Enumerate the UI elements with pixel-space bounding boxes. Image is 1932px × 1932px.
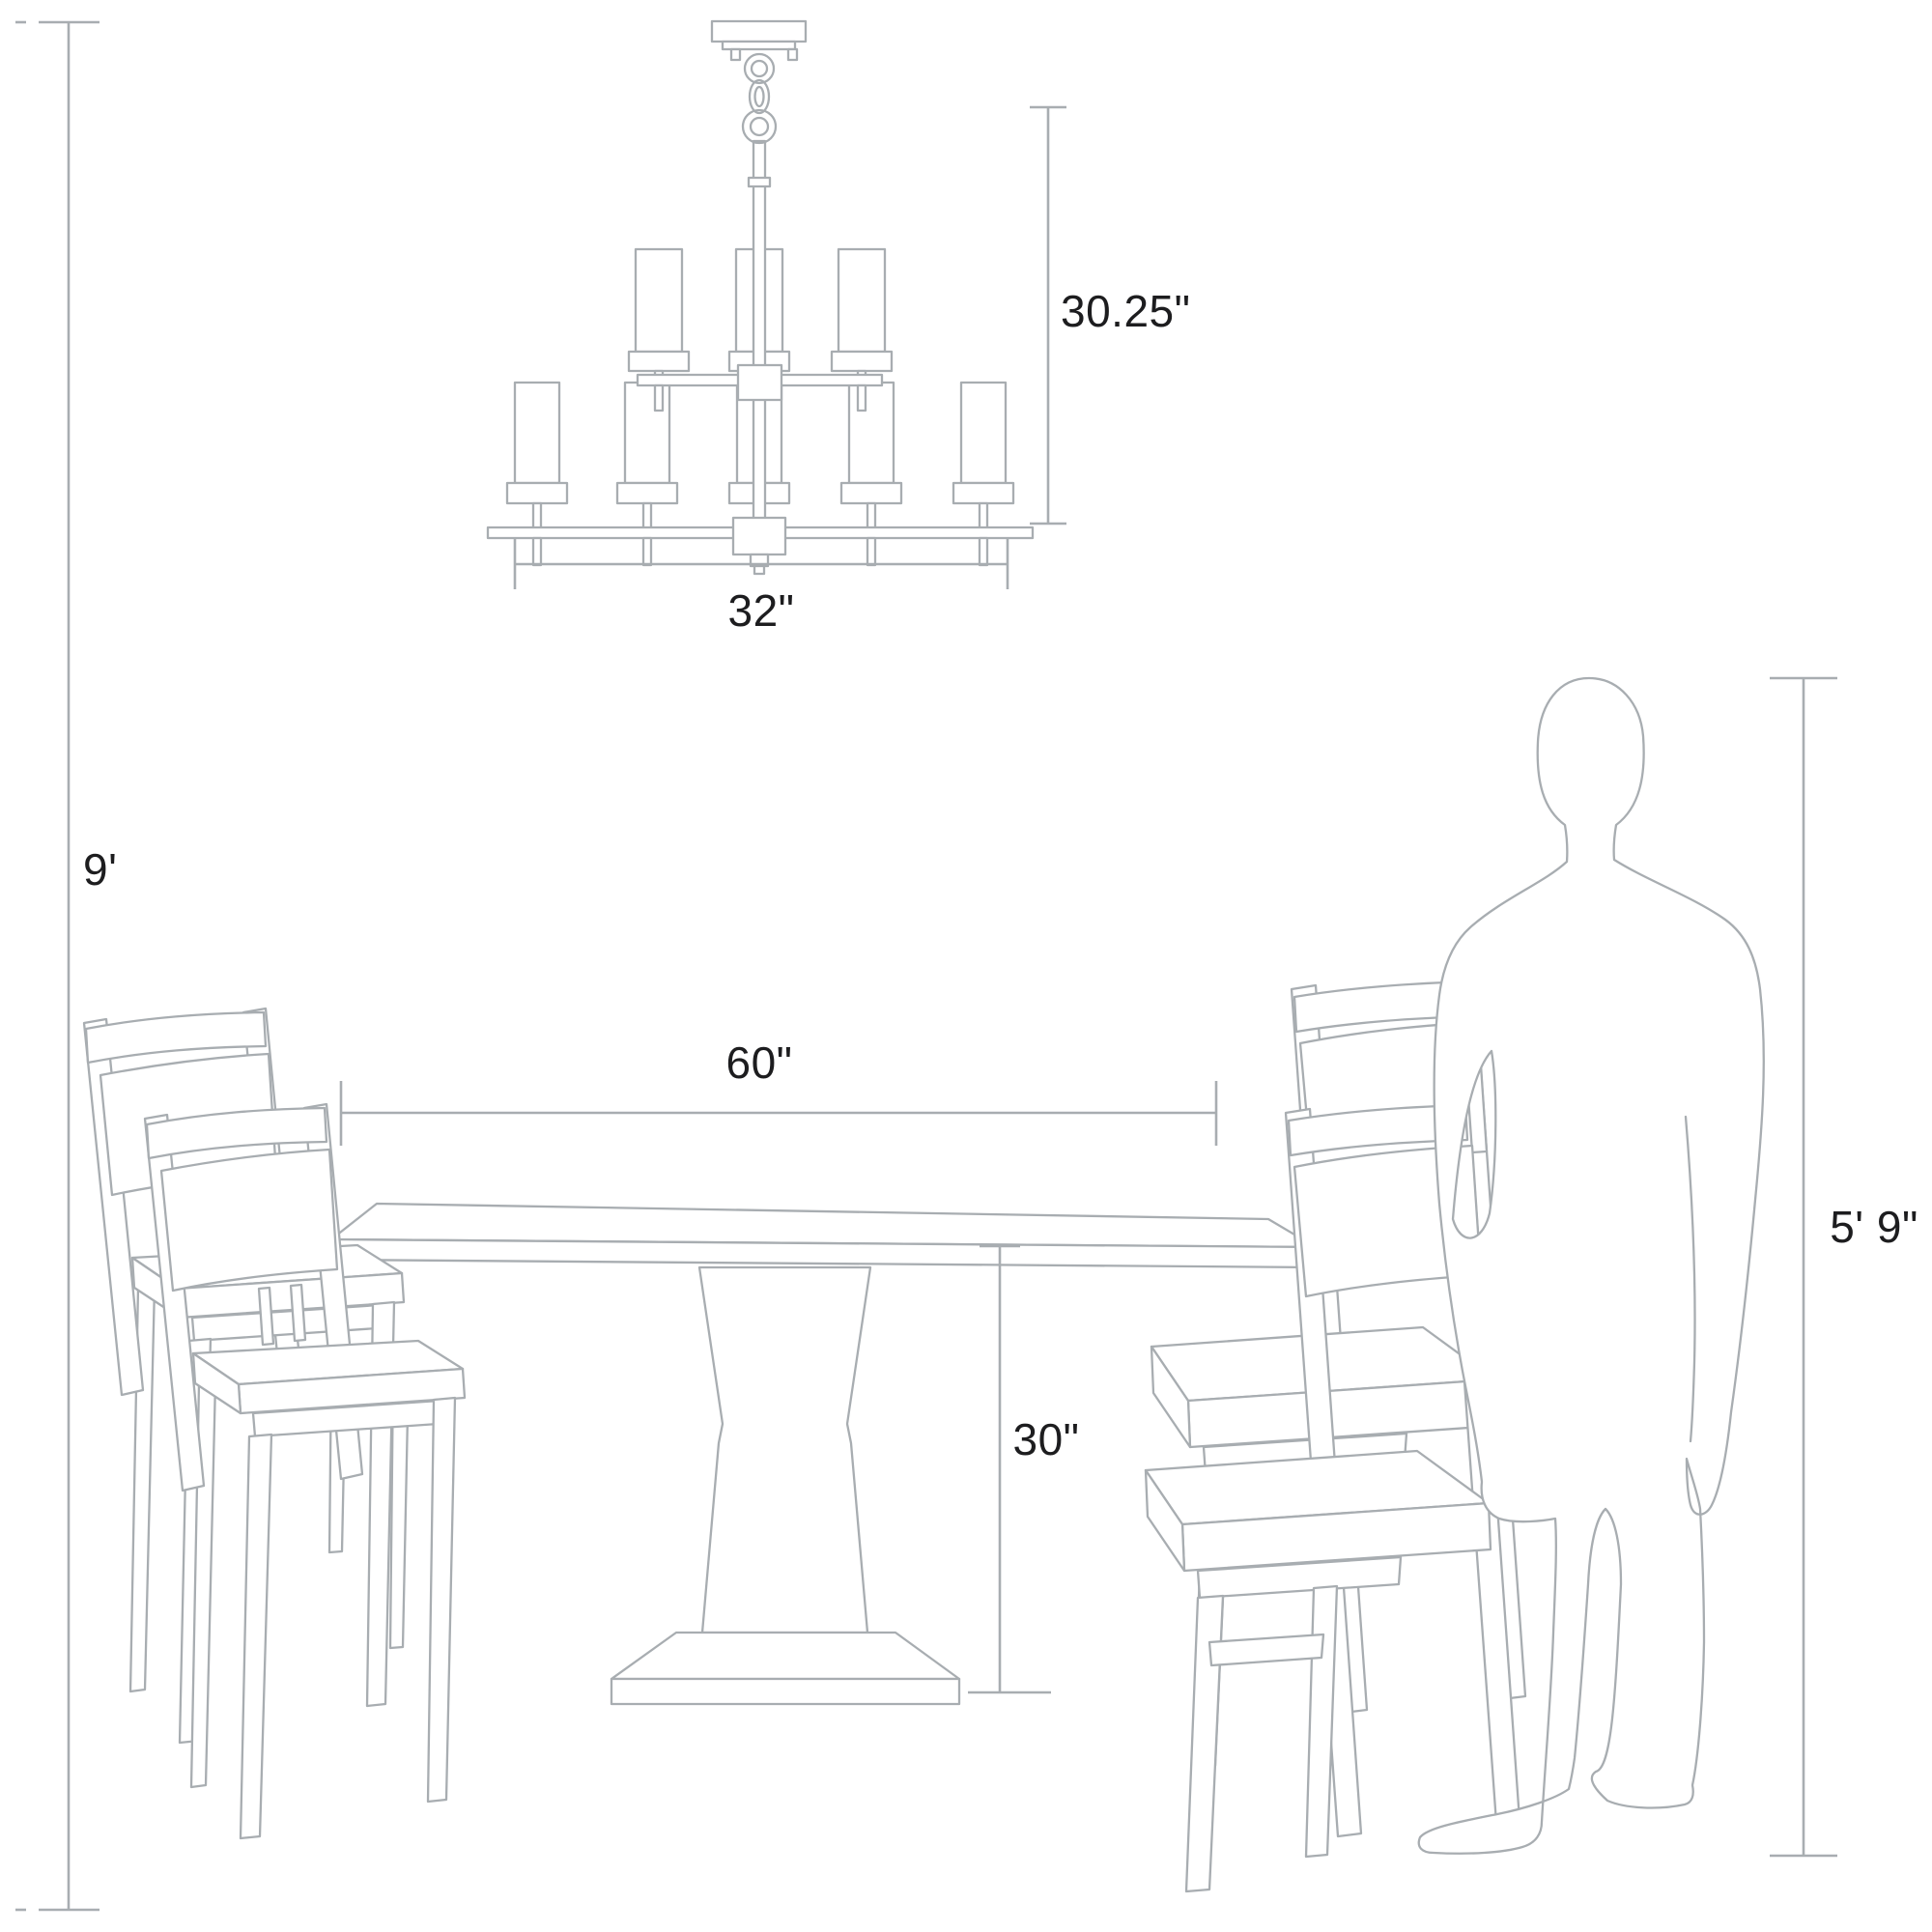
chandelier-rod [753,141,765,537]
dimension-table-height: 30" [968,1246,1080,1692]
dining-table [331,1204,1316,1704]
room-height-label: 9' [83,844,117,895]
dimension-table-width: 60" [341,1037,1216,1146]
chandelier-width-label: 32" [728,585,795,636]
chandelier-height-label: 30.25" [1061,286,1190,336]
person-height-label: 5' 9" [1830,1202,1918,1252]
table-width-label: 60" [726,1037,793,1088]
chandelier [488,21,1033,574]
chandelier-chain [743,54,776,143]
table-base-slab [611,1679,959,1704]
dimension-diagram: 9' [0,0,1932,1932]
chandelier-lower-hub [733,518,785,554]
table-base-top [611,1633,959,1679]
person-silhouette [1419,678,1764,1854]
dimension-person-height: 5' 9" [1770,678,1918,1856]
dimension-chandelier-height: 30.25" [1030,107,1190,524]
table-height-label: 30" [1013,1414,1080,1464]
diagram-canvas: 9' [0,0,1932,1932]
chandelier-upper-hub [738,365,781,400]
dimension-room-height: 9' [15,22,117,1910]
table-pedestal [699,1267,870,1633]
chair-front-right [1146,1097,1520,1891]
